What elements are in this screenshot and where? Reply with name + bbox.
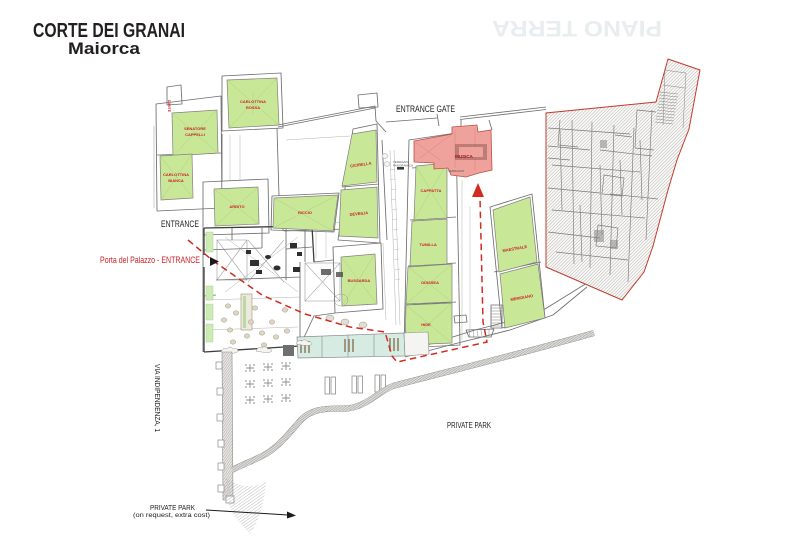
svg-text:RICCIO: RICCIO xyxy=(298,210,312,215)
svg-text:ARDITO: ARDITO xyxy=(229,204,244,209)
svg-text:PRIVATE PARK: PRIVATE PARK xyxy=(447,421,492,430)
svg-text:BUSSARDA: BUSSARDA xyxy=(348,278,371,283)
svg-text:MUSICA: MUSICA xyxy=(455,154,473,159)
svg-text:Maiorca: Maiorca xyxy=(68,39,141,58)
svg-text:TUMILLA: TUMILLA xyxy=(419,242,437,247)
svg-text:ENTRANCE GATE: ENTRANCE GATE xyxy=(396,104,455,114)
svg-text:CARLOTTINA: CARLOTTINA xyxy=(163,172,189,177)
svg-text:PANORAMICA: PANORAMICA xyxy=(393,164,413,168)
svg-text:VIA INDIPENDENZA, 1: VIA INDIPENDENZA, 1 xyxy=(153,364,162,432)
svg-text:CAPPELLI: CAPPELLI xyxy=(185,132,205,137)
svg-text:PRIVATE PARK: PRIVATE PARK xyxy=(150,505,195,512)
svg-text:(on request, extra cost): (on request, extra cost) xyxy=(133,512,210,519)
svg-text:BIANCA: BIANCA xyxy=(168,178,184,183)
svg-text:CAPPATTA: CAPPATTA xyxy=(421,188,442,193)
svg-text:TERRAZZO: TERRAZZO xyxy=(448,169,465,173)
svg-text:ENTRANCE: ENTRANCE xyxy=(161,219,199,229)
svg-text:HIDE: HIDE xyxy=(421,322,431,327)
svg-text:PIANO TERRA: PIANO TERRA xyxy=(492,16,662,41)
svg-text:DANTE: DANTE xyxy=(167,100,171,113)
svg-text:CARLOTTINA: CARLOTTINA xyxy=(240,99,266,104)
svg-text:SENATORE: SENATORE xyxy=(184,126,206,131)
svg-text:ODISSEA: ODISSEA xyxy=(421,280,439,285)
svg-text:Porta del Palazzo - ENTRANCE: Porta del Palazzo - ENTRANCE xyxy=(100,255,200,266)
svg-text:ROSSA: ROSSA xyxy=(246,105,260,110)
